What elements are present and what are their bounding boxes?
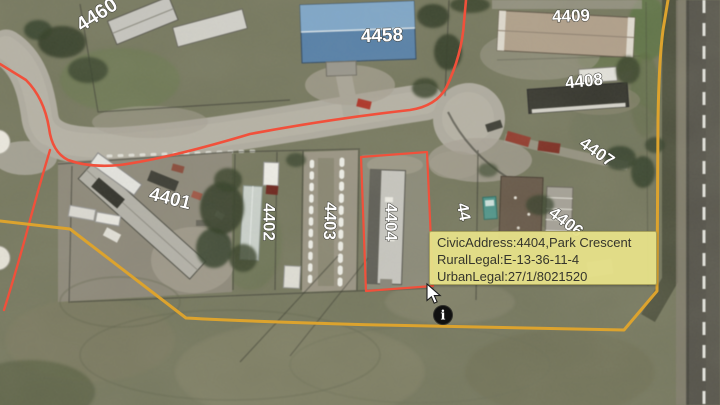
tooltip-rural-legal: RuralLegal:E-13-36-11-4	[437, 251, 656, 268]
parcel-label-4408: 4408	[564, 70, 604, 93]
parcel-label-4458: 4458	[361, 25, 404, 47]
info-marker[interactable]: i	[434, 306, 453, 325]
photo-grain	[0, 0, 720, 405]
parcel-label-4404: 4404	[382, 203, 401, 241]
gis-map-viewport[interactable]: 4460 4458 4409 4408 4407 4406 44 4404 44…	[0, 0, 720, 405]
parcel-label-4409: 4409	[552, 6, 590, 26]
tooltip-urban-legal: UrbanLegal:27/1/8021520	[437, 268, 656, 285]
parcel-info-tooltip: CivicAddress:4404,Park Crescent RuralLeg…	[429, 231, 657, 285]
parcel-label-4405-partial: 44	[453, 202, 473, 223]
parcel-label-4403: 4403	[320, 202, 340, 240]
parcel-label-4402: 4402	[260, 203, 279, 241]
tooltip-civic-address: CivicAddress:4404,Park Crescent	[437, 234, 656, 251]
aerial-imagery	[0, 0, 720, 405]
info-icon: i	[441, 309, 446, 324]
